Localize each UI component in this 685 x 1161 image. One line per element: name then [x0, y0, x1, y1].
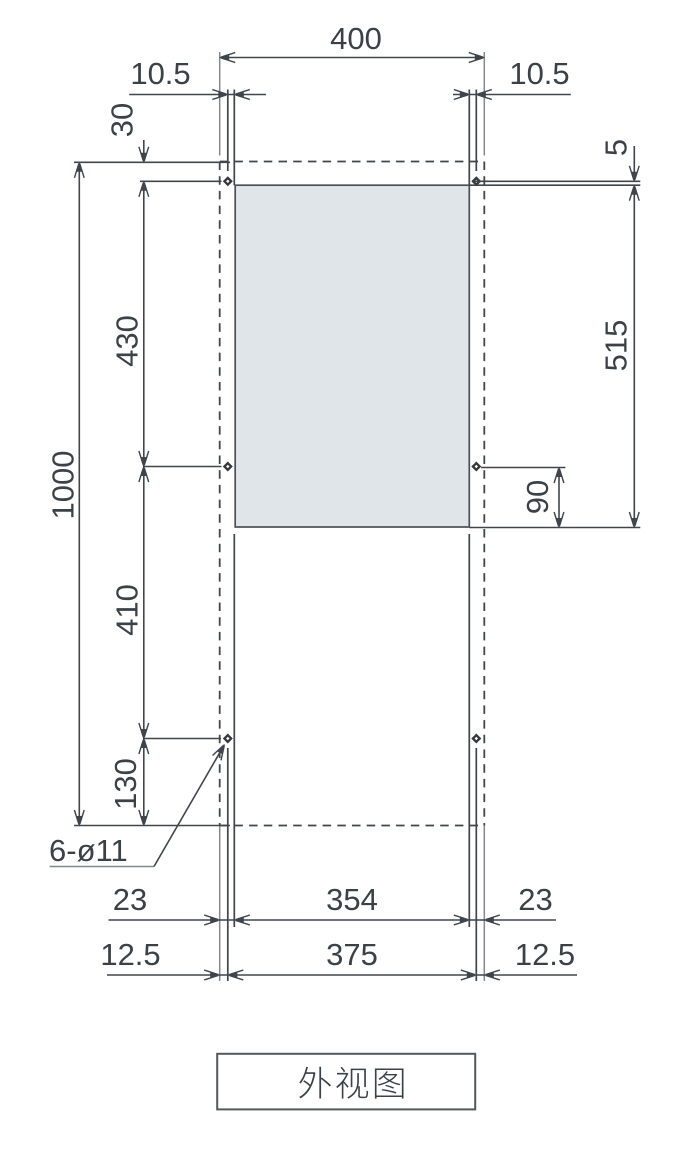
svg-text:6-ø11: 6-ø11 — [49, 833, 128, 868]
svg-text:23: 23 — [518, 882, 552, 917]
svg-text:12.5: 12.5 — [100, 937, 160, 972]
svg-text:5: 5 — [599, 139, 634, 156]
svg-text:10.5: 10.5 — [130, 56, 190, 91]
svg-text:1000: 1000 — [46, 451, 81, 520]
svg-text:23: 23 — [113, 882, 147, 917]
svg-text:12.5: 12.5 — [515, 937, 575, 972]
svg-text:375: 375 — [326, 937, 378, 972]
svg-text:30: 30 — [105, 103, 140, 137]
svg-text:410: 410 — [110, 584, 145, 636]
svg-text:90: 90 — [520, 480, 555, 514]
svg-text:10.5: 10.5 — [509, 56, 569, 91]
svg-text:430: 430 — [110, 315, 145, 367]
svg-text:400: 400 — [330, 21, 382, 56]
svg-text:515: 515 — [599, 320, 634, 372]
svg-text:354: 354 — [326, 882, 378, 917]
svg-text:130: 130 — [108, 758, 143, 810]
